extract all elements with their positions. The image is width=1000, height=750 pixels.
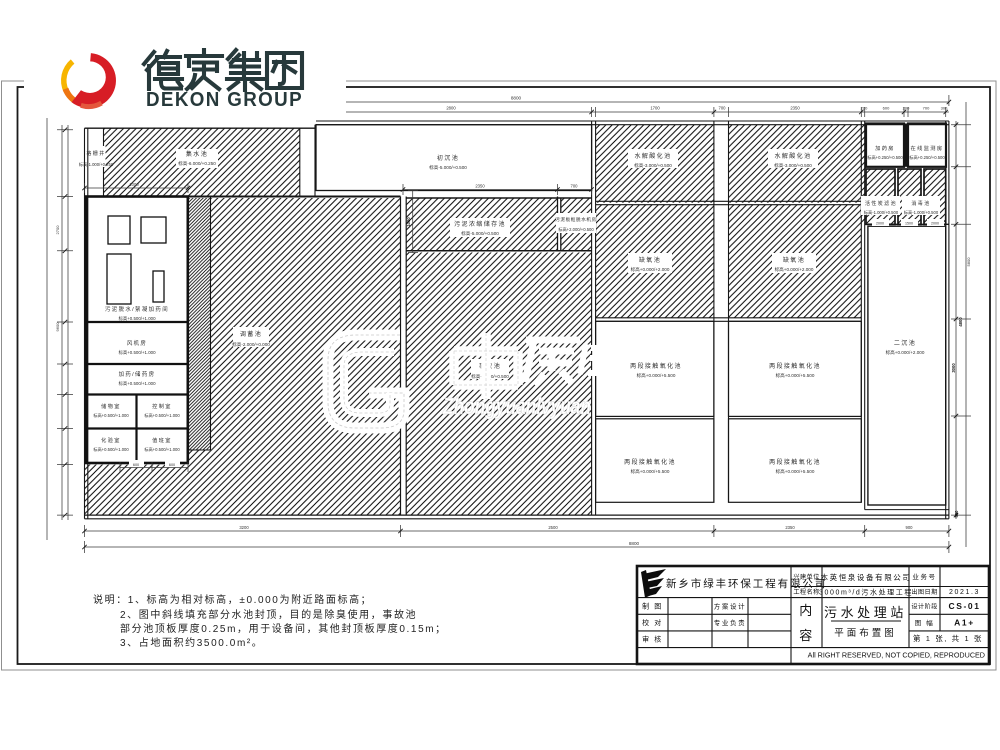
svg-text:标高+0.250/+0.500: 标高+0.250/+0.500: [867, 154, 903, 161]
svg-text:缺氧池: 缺氧池: [783, 256, 805, 264]
svg-text:标高+0.000/+5.500: 标高+0.000/+5.500: [631, 468, 670, 475]
svg-text:标高+0.000/+5.500: 标高+0.000/+5.500: [637, 372, 676, 379]
svg-text:8800: 8800: [629, 541, 640, 546]
svg-text:A1+: A1+: [954, 618, 975, 628]
svg-text:本英恒泉设备有限公司: 本英恒泉设备有限公司: [821, 572, 912, 582]
svg-text:标高+0.500/+1.000: 标高+0.500/+1.000: [93, 446, 129, 453]
svg-text:部分池顶板厚度0.25m，用于设备间，其他封顶板厚度0.15: 部分池顶板厚度0.25m，用于设备间，其他封顶板厚度0.15m；: [120, 622, 447, 635]
svg-text:调蓄池: 调蓄池: [240, 330, 262, 338]
svg-text:容: 容: [799, 628, 814, 643]
svg-text:标高+0.250/+0.500: 标高+0.250/+0.500: [909, 154, 945, 161]
svg-text:化验室: 化验室: [101, 436, 121, 444]
svg-text:标高+0.500/+1.000: 标高+0.500/+1.000: [144, 412, 180, 419]
svg-text:1000: 1000: [129, 182, 139, 187]
svg-text:3000: 3000: [951, 363, 956, 373]
svg-text:标高+0.000/+2.000: 标高+0.000/+2.000: [775, 266, 814, 273]
svg-text:1500: 1500: [905, 222, 913, 226]
svg-text:4800: 4800: [958, 317, 963, 327]
svg-text:标高-3.000/+0.500: 标高-3.000/+0.500: [774, 162, 812, 169]
svg-text:3200: 3200: [239, 525, 249, 530]
svg-text:200: 200: [903, 106, 910, 111]
svg-text:储物室: 储物室: [101, 402, 121, 410]
svg-text:污泥浓缩储存池: 污泥浓缩储存池: [454, 220, 506, 228]
svg-text:1000: 1000: [406, 217, 411, 227]
svg-text:标高+0.000/+2.000: 标高+0.000/+2.000: [631, 266, 670, 273]
svg-text:2000: 2000: [876, 222, 884, 226]
svg-text:标高+0.500/+1.000: 标高+0.500/+1.000: [118, 315, 156, 322]
svg-text:缺氧池: 缺氧池: [639, 256, 661, 264]
svg-text:污泥脱水/絮凝加药间: 污泥脱水/絮凝加药间: [105, 305, 169, 313]
svg-text:兴建单位: 兴建单位: [793, 573, 819, 581]
svg-text:3000m³/d污水处理工程: 3000m³/d污水处理工程: [819, 588, 913, 597]
svg-text:消毒池: 消毒池: [911, 200, 930, 207]
svg-text:标高-6.000/+0.250: 标高-6.000/+0.250: [178, 160, 216, 167]
svg-text:第 1 张, 共 1 张: 第 1 张, 共 1 张: [913, 633, 983, 643]
svg-text:300: 300: [941, 106, 948, 111]
svg-text:水解酸化池: 水解酸化池: [634, 152, 671, 160]
svg-text:标高+0.500/+1.000: 标高+0.500/+1.000: [118, 349, 156, 356]
svg-text:700: 700: [719, 106, 727, 111]
svg-text:标高-3.000/+0.500: 标高-3.000/+0.500: [634, 162, 672, 169]
svg-text:控制室: 控制室: [152, 402, 172, 410]
svg-text:2、图中斜线填充部分水池封顶，目的是除臭使用，事故池: 2、图中斜线填充部分水池封顶，目的是除臭使用，事故池: [120, 608, 417, 621]
svg-text:600: 600: [883, 106, 890, 111]
svg-text:CS-01: CS-01: [948, 601, 980, 611]
svg-text:2000: 2000: [931, 222, 939, 226]
svg-text:专业负责: 专业负责: [714, 618, 746, 627]
svg-text:200: 200: [861, 106, 868, 111]
svg-text:两段接触氧化池: 两段接触氧化池: [624, 458, 676, 466]
svg-text:说明：1、标高为相对标高，±0.000为附近路面标高；: 说明：1、标高为相对标高，±0.000为附近路面标高；: [93, 593, 372, 606]
svg-text:900: 900: [906, 525, 914, 530]
svg-text:2021.3: 2021.3: [949, 589, 980, 596]
svg-text:二沉池: 二沉池: [894, 339, 916, 347]
svg-text:图 幅: 图 幅: [915, 618, 935, 627]
svg-text:方案设计: 方案设计: [714, 602, 746, 611]
svg-text:标高+2.000/+0.500: 标高+2.000/+0.500: [558, 226, 594, 233]
svg-text:工程名称: 工程名称: [793, 588, 819, 596]
svg-text:标高-5.000/+0.500: 标高-5.000/+0.500: [429, 164, 467, 171]
svg-text:标高-1.000/+0.250: 标高-1.000/+0.250: [79, 161, 114, 168]
svg-text:700: 700: [571, 184, 579, 189]
svg-text:9600: 9600: [55, 322, 60, 332]
svg-text:审 核: 审 核: [642, 635, 663, 644]
svg-text:两段接触氧化池: 两段接触氧化池: [630, 362, 682, 370]
svg-text:加药/储药房: 加药/储药房: [119, 370, 156, 378]
svg-text:2500: 2500: [548, 525, 558, 530]
svg-text:标高-1.000/+0.500: 标高-1.000/+0.500: [904, 209, 939, 216]
svg-text:700: 700: [923, 106, 930, 111]
svg-text:All RIGHT RESERVED, NOT CO: All RIGHT RESERVED, NOT COPIED, REPRODUC…: [808, 651, 985, 660]
svg-text:活性炭滤池: 活性炭滤池: [865, 200, 897, 207]
svg-text:校 对: 校 对: [642, 618, 663, 627]
svg-text:出图日期: 出图日期: [911, 588, 937, 596]
svg-text:600: 600: [169, 463, 175, 467]
svg-text:600: 600: [133, 463, 139, 467]
svg-text:内: 内: [799, 603, 814, 618]
svg-text:8800: 8800: [511, 96, 522, 101]
svg-text:标高-2.000/+0.000: 标高-2.000/+0.000: [232, 341, 270, 348]
svg-text:污泥板框脱水机房: 污泥板框脱水机房: [555, 216, 597, 223]
svg-text:两段接触氧化池: 两段接触氧化池: [769, 362, 821, 370]
svg-text:标高+0.500/+1.000: 标高+0.500/+1.000: [144, 446, 180, 453]
svg-text:2350: 2350: [475, 184, 485, 189]
svg-text:标高+0.000/+2.000: 标高+0.000/+2.000: [886, 349, 925, 356]
svg-text:DEKON GROUP: DEKON GROUP: [146, 88, 303, 111]
svg-text:值班室: 值班室: [152, 436, 172, 444]
svg-text:集水池: 集水池: [186, 150, 208, 158]
svg-text:标高+0.500/+1.000: 标高+0.500/+1.000: [118, 380, 156, 387]
svg-text:550: 550: [954, 510, 959, 518]
svg-text:标高+0.500/+1.000: 标高+0.500/+1.000: [93, 412, 129, 419]
svg-text:Zhongyuanlvyuan: Zhongyuanlvyuan: [442, 393, 591, 419]
svg-text:2350: 2350: [790, 106, 800, 111]
svg-text:2800: 2800: [446, 106, 456, 111]
svg-text:5800: 5800: [966, 257, 971, 267]
svg-text:设计阶段: 设计阶段: [911, 603, 937, 611]
svg-text:风机房: 风机房: [127, 339, 147, 347]
svg-text:污水处理站: 污水处理站: [824, 605, 907, 620]
svg-text:加药房: 加药房: [875, 144, 895, 152]
svg-text:平面布置图: 平面布置图: [834, 627, 897, 639]
svg-text:标高-5.000/+0.500: 标高-5.000/+0.500: [461, 230, 499, 237]
svg-text:3、占地面积约3500.0m²。: 3、占地面积约3500.0m²。: [120, 636, 263, 649]
svg-text:制 图: 制 图: [642, 602, 663, 611]
svg-text:2350: 2350: [785, 525, 795, 530]
svg-text:两段接触氧化池: 两段接触氧化池: [769, 458, 821, 466]
svg-text:标高+0.000/+5.500: 标高+0.000/+5.500: [776, 468, 815, 475]
svg-text:初沉池: 初沉池: [437, 154, 459, 162]
svg-text:格栅井: 格栅井: [86, 150, 105, 157]
svg-text:在线监测房: 在线监测房: [911, 144, 944, 152]
svg-text:标高+0.000/+5.500: 标高+0.000/+5.500: [776, 372, 815, 379]
svg-text:水解酸化池: 水解酸化池: [774, 152, 811, 160]
svg-text:2700: 2700: [55, 225, 60, 235]
svg-text:1700: 1700: [650, 106, 660, 111]
svg-text:业务号: 业务号: [912, 572, 936, 581]
svg-text:标高-1.000/+0.500: 标高-1.000/+0.500: [864, 209, 899, 216]
